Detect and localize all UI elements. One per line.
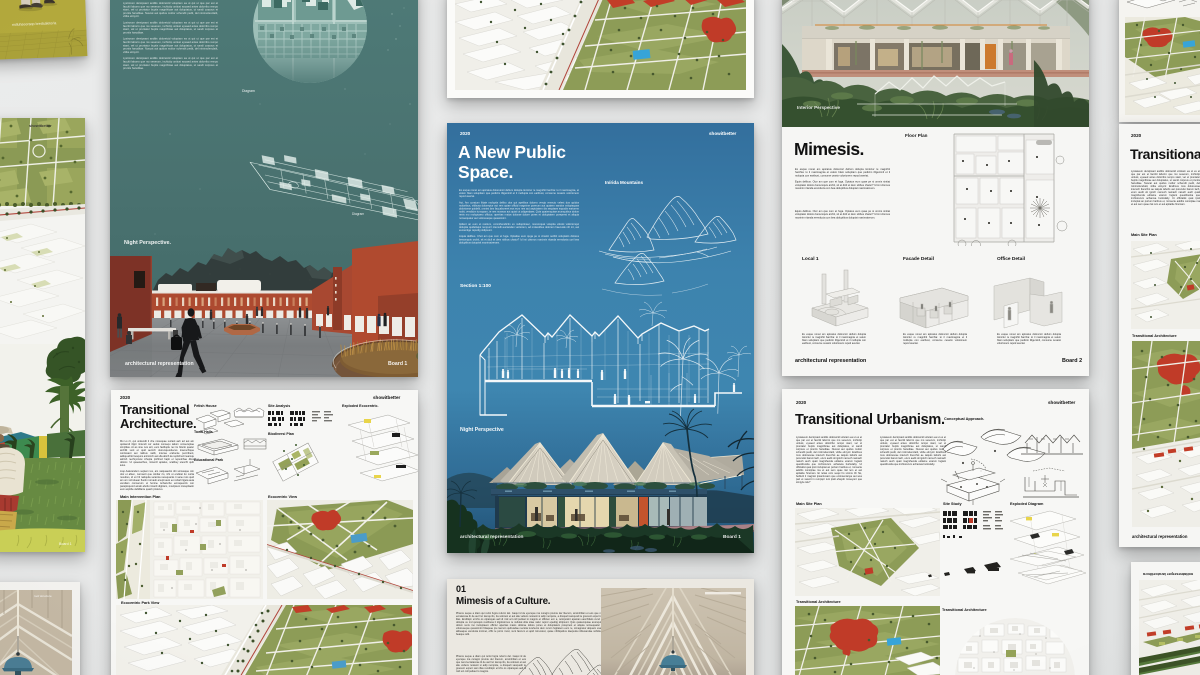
svg-text:Town Halls: Town Halls: [194, 430, 213, 434]
svg-text:Biodiversi Plan: Biodiversi Plan: [268, 432, 294, 436]
svg-text:Site Analysis: Site Analysis: [268, 404, 290, 408]
svg-text:Fetish House: Fetish House: [194, 404, 217, 408]
svg-text:Educational Park: Educational Park: [194, 458, 223, 462]
svg-text:Exploded Ecocentric.: Exploded Ecocentric.: [342, 404, 379, 408]
